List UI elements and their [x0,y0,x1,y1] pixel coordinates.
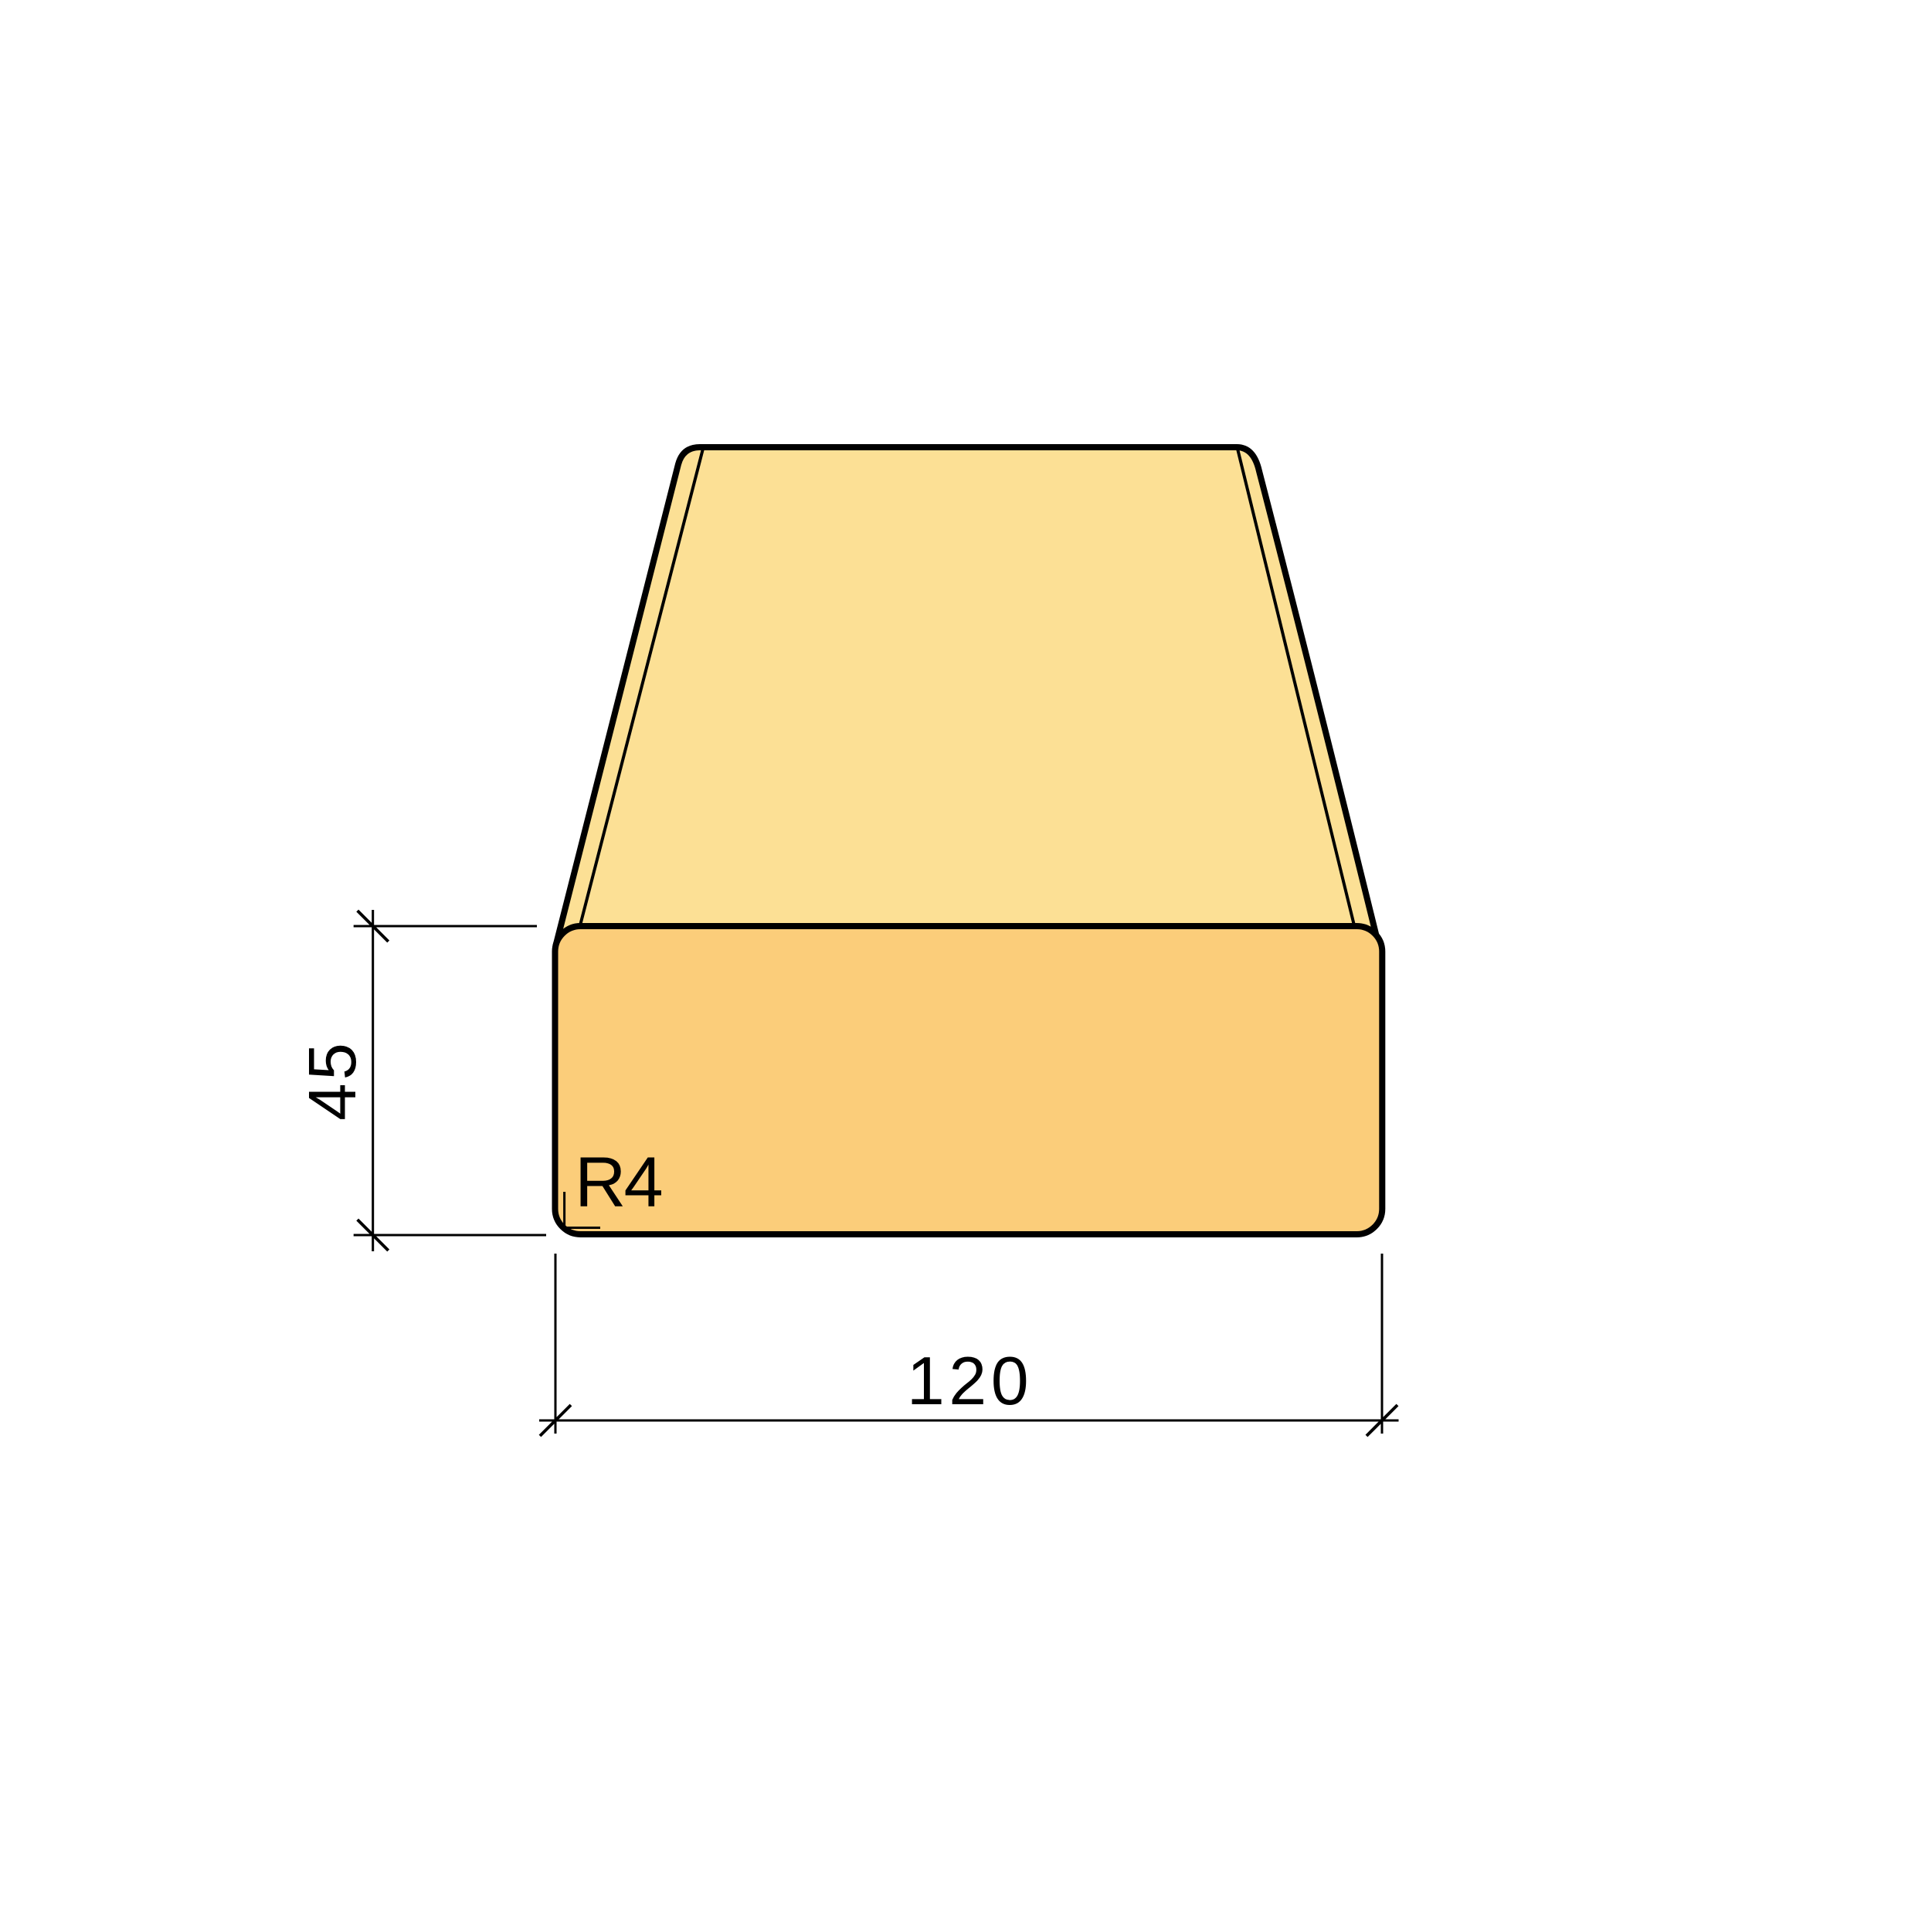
svg-text:R4: R4 [575,1143,661,1222]
svg-text:120: 120 [907,1342,1033,1419]
svg-text:45: 45 [295,1040,370,1121]
